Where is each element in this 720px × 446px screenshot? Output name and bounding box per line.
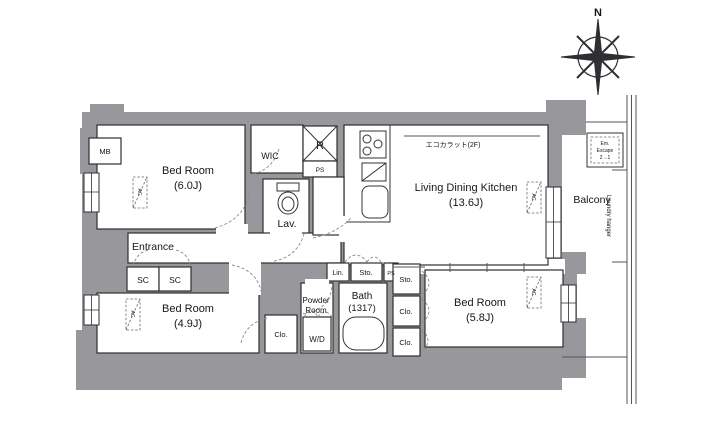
- bottom-left-step: [76, 330, 98, 390]
- compass-point-west: [561, 53, 598, 61]
- label-sto-east: Sto.: [399, 275, 412, 284]
- balcony-railing: [627, 95, 636, 404]
- label-sto-hall: Sto.: [359, 268, 372, 277]
- escape-hatch-label: Em.: [601, 141, 610, 147]
- ac-label: AC: [129, 311, 135, 318]
- label-wd: W/D: [309, 335, 325, 344]
- label-mb: MB: [99, 147, 110, 156]
- laundry-hanger-brackets: [612, 170, 627, 262]
- label-ps-hall: PS: [387, 271, 395, 277]
- label-sc-left: SC: [137, 275, 149, 285]
- label-bath: Bath: [352, 291, 373, 302]
- label-clo-bedroom: Clo.: [274, 330, 287, 339]
- opening-bedroom-small: [229, 261, 261, 295]
- label-powder-2: Room: [305, 306, 327, 315]
- compass-icon: N: [561, 7, 635, 95]
- label-sc-right: SC: [169, 275, 181, 285]
- compass-point-south: [594, 57, 602, 95]
- label-wic: WIC: [261, 151, 279, 161]
- label-ldk-size: (13.6J): [449, 197, 483, 209]
- label-bedroom-east-size: (5.8J): [466, 312, 494, 324]
- label-ldk: Living Dining Kitchen: [415, 182, 518, 194]
- label-powder-1: Powder: [302, 296, 329, 305]
- label-bath-size: (1317): [348, 303, 375, 314]
- top-right-column: [546, 100, 586, 135]
- label-bedroom-small-size: (4.9J): [174, 318, 202, 330]
- ac-label: AC: [530, 194, 536, 201]
- compass-point-east: [598, 53, 635, 61]
- label-bedroom-east: Bed Room: [454, 297, 506, 309]
- top-left-step: [90, 104, 124, 114]
- washer-dryer-space: [303, 317, 331, 351]
- ac-label: AC: [136, 189, 142, 196]
- ecocarat-label: エコカラット(2F): [426, 141, 481, 149]
- label-bedroom-main-size: (6.0J): [174, 180, 202, 192]
- label-refrigerator: R: [316, 140, 324, 152]
- compass-north-label: N: [594, 7, 602, 19]
- label-bedroom-small: Bed Room: [162, 303, 214, 315]
- label-ps-top: PS: [316, 167, 325, 174]
- label-lav: Lav.: [277, 218, 296, 230]
- opening-ldk: [339, 216, 349, 242]
- room-wic: [251, 125, 303, 173]
- escape-hatch-label: Escape: [597, 148, 614, 154]
- escape-hatch-label: 2→1: [600, 155, 611, 161]
- label-clo-east-upper: Clo.: [399, 307, 412, 316]
- label-lin: Lin.: [332, 270, 343, 277]
- label-balcony: Balcony: [573, 194, 611, 206]
- opening-powder: [305, 279, 329, 287]
- label-clo-east-lower: Clo.: [399, 338, 412, 347]
- label-entrance: Entrance: [132, 241, 174, 253]
- opening-lav: [270, 230, 302, 240]
- floor-plan: AC AC AC AC Laundry hanger Em. Escape 2→…: [0, 0, 720, 446]
- compass-point-north: [594, 19, 602, 57]
- ac-label: AC: [530, 289, 536, 296]
- floor-plan-drawing: AC AC AC AC Laundry hanger Em. Escape 2→…: [0, 0, 720, 446]
- label-bedroom-main: Bed Room: [162, 165, 214, 177]
